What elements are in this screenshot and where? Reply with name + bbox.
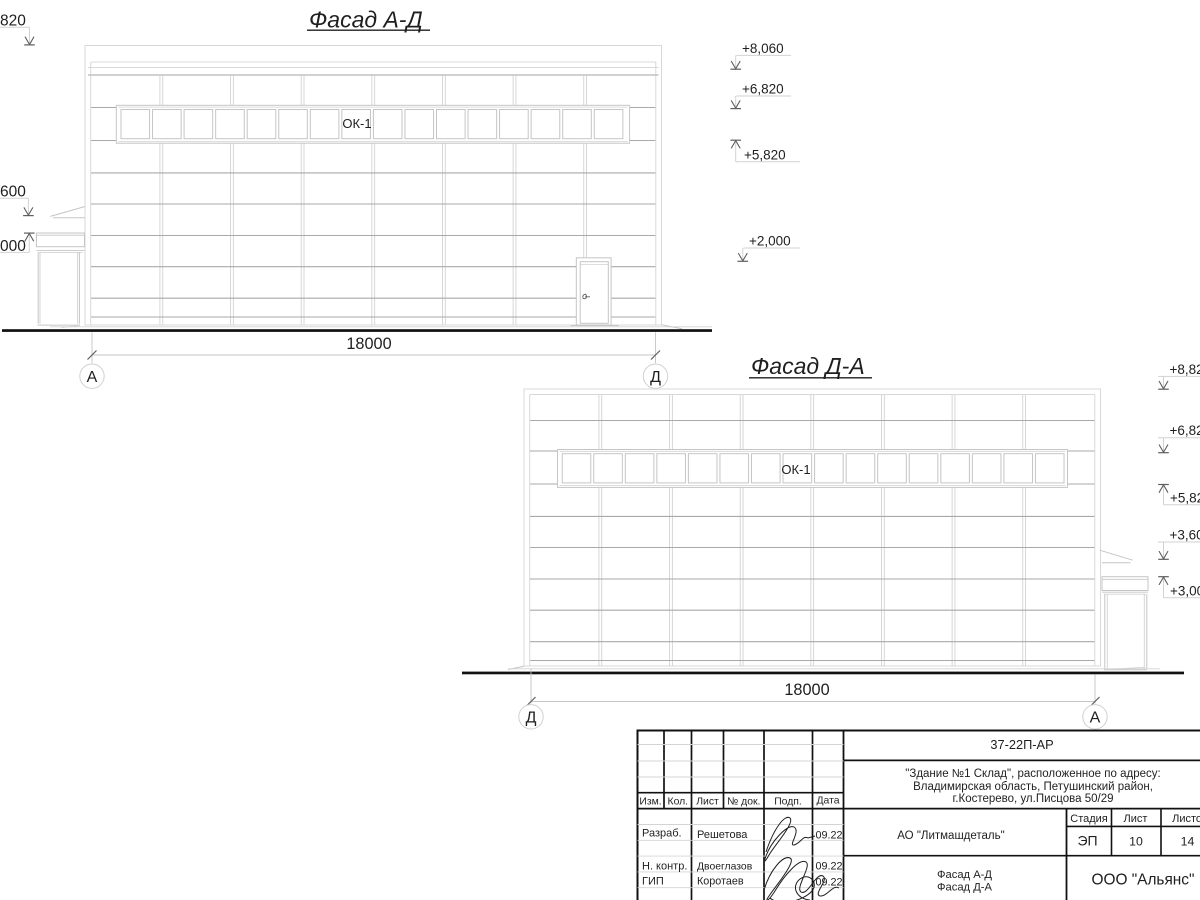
svg-text:Двоеглазов: Двоеглазов xyxy=(697,861,753,872)
svg-text:Стадия: Стадия xyxy=(1070,813,1108,825)
svg-text:Изм.: Изм. xyxy=(639,796,661,807)
svg-text:000: 000 xyxy=(0,238,26,255)
svg-text:№ док.: № док. xyxy=(727,796,760,807)
svg-text:09.22: 09.22 xyxy=(816,860,843,872)
svg-text:"Здание №1 Склад", расположенн: "Здание №1 Склад", расположенное по адре… xyxy=(905,768,1160,780)
svg-text:ООО "Альянс": ООО "Альянс" xyxy=(1092,872,1195,889)
svg-text:10: 10 xyxy=(1129,834,1143,848)
svg-text:Кол.: Кол. xyxy=(668,796,689,807)
svg-text:Листов: Листов xyxy=(1172,813,1200,825)
svg-text:+3,600: +3,600 xyxy=(1170,528,1200,543)
svg-text:Лист: Лист xyxy=(1124,813,1148,825)
svg-text:г.Костерево, ул.Писцова 50/29: г.Костерево, ул.Писцова 50/29 xyxy=(953,793,1114,805)
svg-text:820: 820 xyxy=(0,13,26,30)
svg-text:Владимирская область, Петушинс: Владимирская область, Петушинский район, xyxy=(913,781,1153,793)
svg-text:Подп.: Подп. xyxy=(774,796,802,807)
svg-text:+6,820: +6,820 xyxy=(1170,423,1200,438)
svg-text:Коротаев: Коротаев xyxy=(697,875,744,887)
svg-text:14: 14 xyxy=(1181,834,1195,848)
svg-text:+5,820: +5,820 xyxy=(1170,491,1200,506)
svg-text:09.22: 09.22 xyxy=(816,877,843,889)
svg-text:Дата: Дата xyxy=(816,795,839,806)
svg-text:Фасад Д-А: Фасад Д-А xyxy=(751,353,865,379)
svg-text:Фасад А-Д: Фасад А-Д xyxy=(309,7,423,33)
svg-text:Фасад Д-А: Фасад Д-А xyxy=(937,882,992,894)
svg-text:Н. контр.: Н. контр. xyxy=(642,860,687,872)
svg-text:+6,820: +6,820 xyxy=(742,82,784,97)
svg-text:ЭП: ЭП xyxy=(1077,833,1097,849)
svg-text:+8,060: +8,060 xyxy=(742,41,784,56)
svg-text:А: А xyxy=(87,369,98,386)
svg-text:Решетова: Решетова xyxy=(697,829,748,841)
svg-text:АО "Литмашдеталь": АО "Литмашдеталь" xyxy=(897,830,1004,842)
svg-text:Д: Д xyxy=(650,369,661,386)
svg-text:37-22П-АР: 37-22П-АР xyxy=(990,737,1053,752)
svg-text:Д: Д xyxy=(526,710,537,727)
svg-text:09.22: 09.22 xyxy=(816,830,843,842)
svg-text:ОК-1: ОК-1 xyxy=(781,462,810,477)
svg-text:Фасад А-Д: Фасад А-Д xyxy=(937,869,992,881)
svg-text:ГИП: ГИП xyxy=(642,875,664,887)
svg-text:+3,000: +3,000 xyxy=(1170,584,1200,599)
svg-text:+5,820: +5,820 xyxy=(744,148,786,163)
svg-text:ОК-1: ОК-1 xyxy=(342,116,371,131)
svg-text:+2,000: +2,000 xyxy=(749,234,791,249)
svg-text:А: А xyxy=(1090,710,1101,727)
svg-text:600: 600 xyxy=(0,184,26,201)
svg-text:Разраб.: Разраб. xyxy=(642,827,682,839)
svg-text:+8,820: +8,820 xyxy=(1170,362,1200,377)
svg-text:18000: 18000 xyxy=(784,681,829,699)
svg-text:18000: 18000 xyxy=(346,335,391,353)
svg-text:Лист: Лист xyxy=(696,796,719,807)
